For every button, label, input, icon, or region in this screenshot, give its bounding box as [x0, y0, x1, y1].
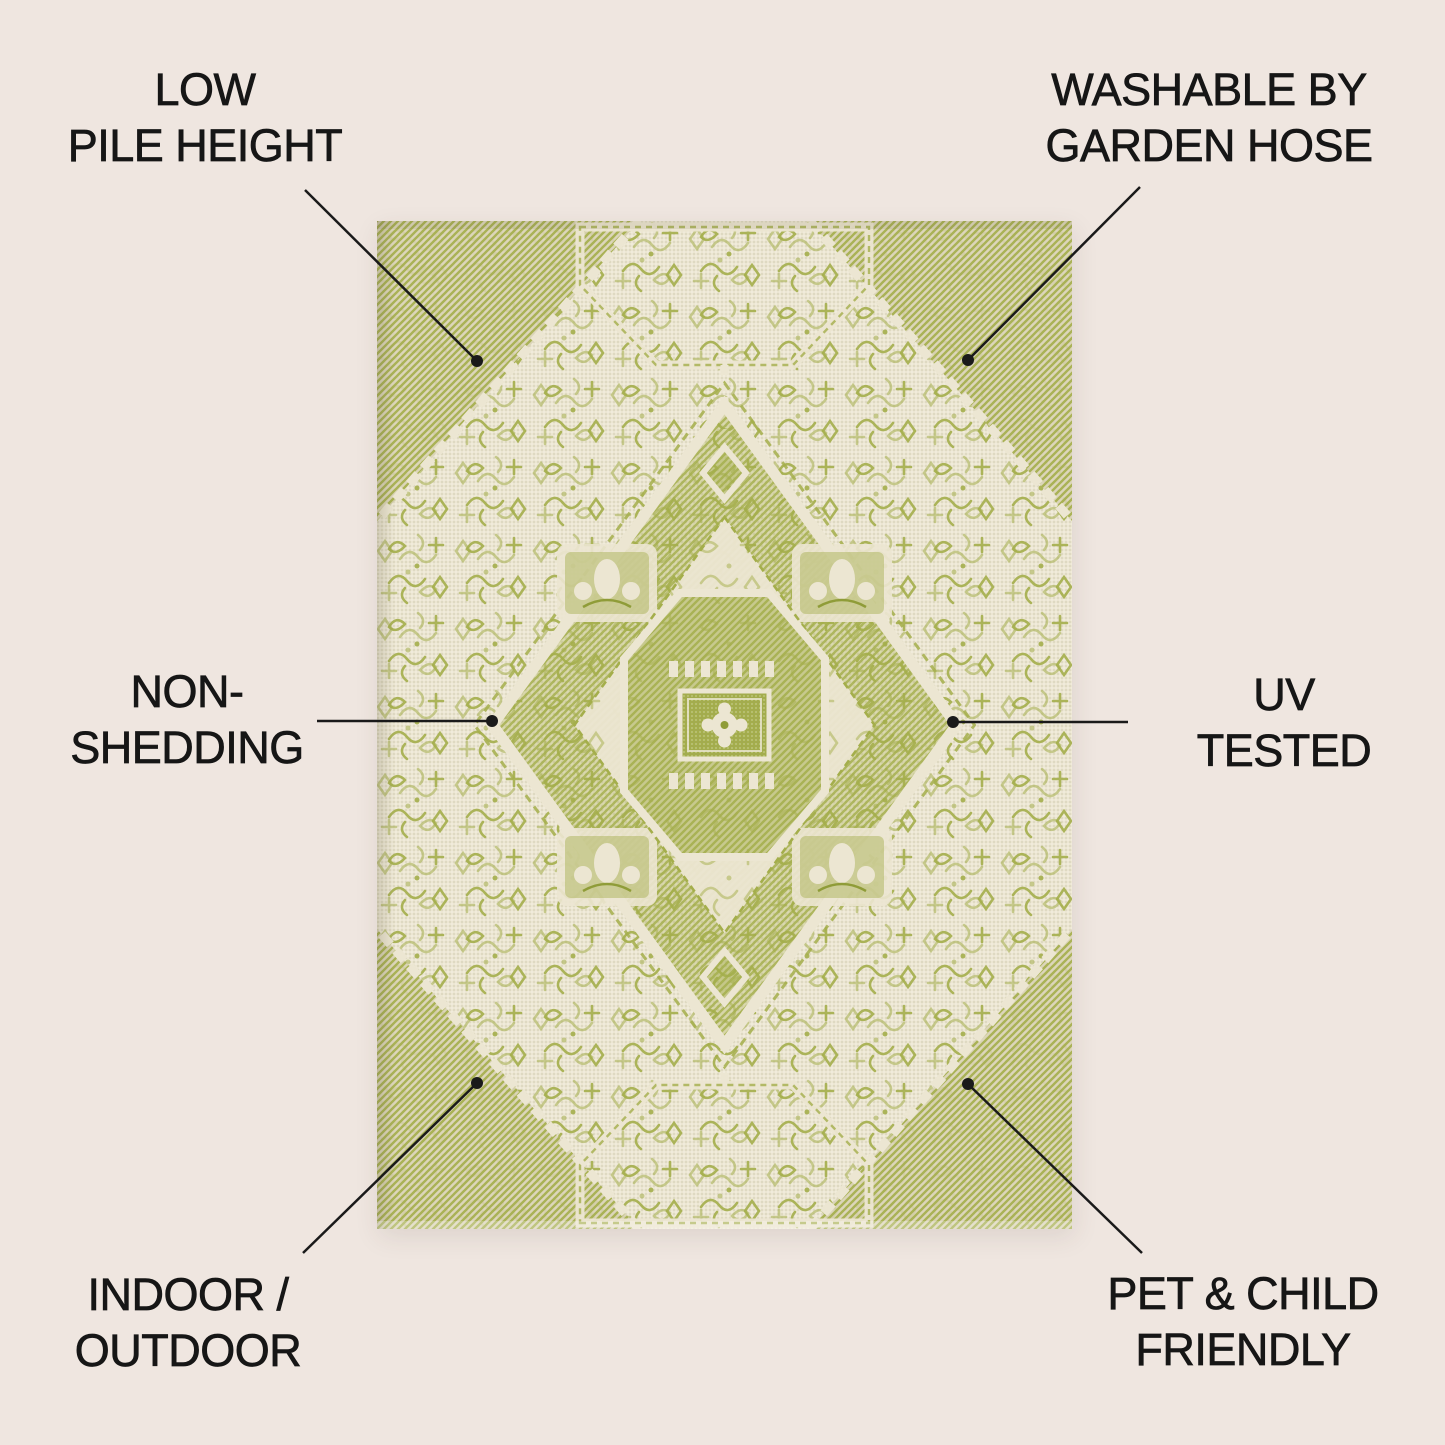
feature-label-line: WASHABLE BY	[1045, 62, 1372, 118]
feature-label-line: SHEDDING	[70, 720, 304, 776]
feature-label-line: OUTDOOR	[75, 1323, 302, 1379]
feature-label-uv-tested: UV TESTED	[1197, 667, 1372, 779]
feature-label-line: TESTED	[1197, 723, 1372, 779]
feature-label-washable-by-garden-hose: WASHABLE BY GARDEN HOSE	[1045, 62, 1372, 174]
rug-image	[377, 221, 1072, 1229]
feature-label-line: PILE HEIGHT	[68, 118, 343, 174]
feature-label-line: LOW	[68, 62, 343, 118]
feature-label-non-shedding: NON- SHEDDING	[70, 664, 304, 776]
rug-floral-panel	[557, 544, 657, 622]
feature-label-line: PET & CHILD	[1107, 1266, 1378, 1322]
feature-label-low-pile-height: LOW PILE HEIGHT	[68, 62, 343, 174]
rug-floral-panel	[792, 544, 892, 622]
rug-feature-infographic: LOW PILE HEIGHT WASHABLE BY GARDEN HOSE …	[0, 0, 1445, 1445]
rug-floral-panel	[557, 828, 657, 906]
feature-label-line: INDOOR /	[75, 1267, 302, 1323]
feature-label-line: GARDEN HOSE	[1045, 118, 1372, 174]
feature-label-pet-child-friendly: PET & CHILD FRIENDLY	[1107, 1266, 1378, 1378]
feature-label-line: FRIENDLY	[1107, 1322, 1378, 1378]
rug-floral-panel	[792, 828, 892, 906]
feature-label-line: NON-	[70, 664, 304, 720]
feature-label-indoor-outdoor: INDOOR / OUTDOOR	[75, 1267, 302, 1379]
feature-label-line: UV	[1197, 667, 1372, 723]
